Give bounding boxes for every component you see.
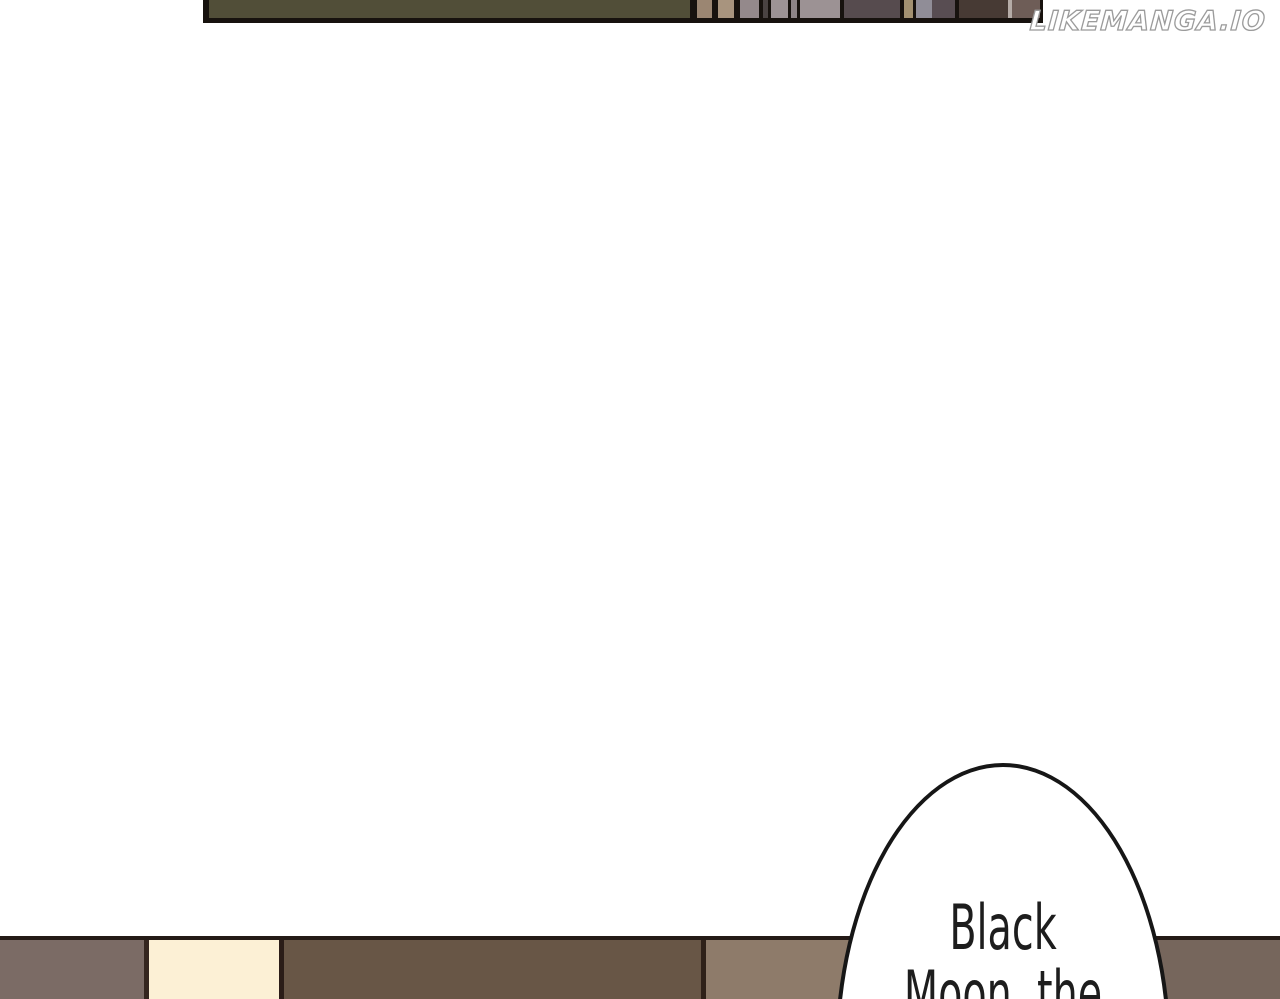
- book-spine: [740, 0, 759, 18]
- manga-page: LIKEMANGA.IO Black Moon, the: [0, 0, 1280, 999]
- book-spine: [771, 0, 788, 18]
- speech-bubble-text: Black Moon, the: [904, 895, 1102, 999]
- spine-gap: [690, 0, 697, 18]
- speech-bubble: Black Moon, the: [835, 763, 1171, 999]
- book-spine: [718, 0, 734, 18]
- shelf-panel-cream: [149, 940, 279, 999]
- book-spine: [800, 0, 840, 18]
- book-spine: [932, 0, 955, 18]
- speech-line-1: Black: [904, 895, 1102, 961]
- speech-line-2: Moon, the: [904, 961, 1102, 999]
- shelf-panel-dark: [284, 940, 701, 999]
- book-spine: [959, 0, 1008, 18]
- site-watermark: LIKEMANGA.IO: [1029, 6, 1267, 37]
- book-spine: [697, 0, 712, 18]
- shelf-panel-olive: [209, 0, 690, 18]
- shelf-panel: [0, 940, 144, 999]
- shelf-bottom-border: [203, 18, 1043, 23]
- book-spine: [904, 0, 913, 18]
- book-spine: [844, 0, 900, 18]
- book-spine: [916, 0, 932, 18]
